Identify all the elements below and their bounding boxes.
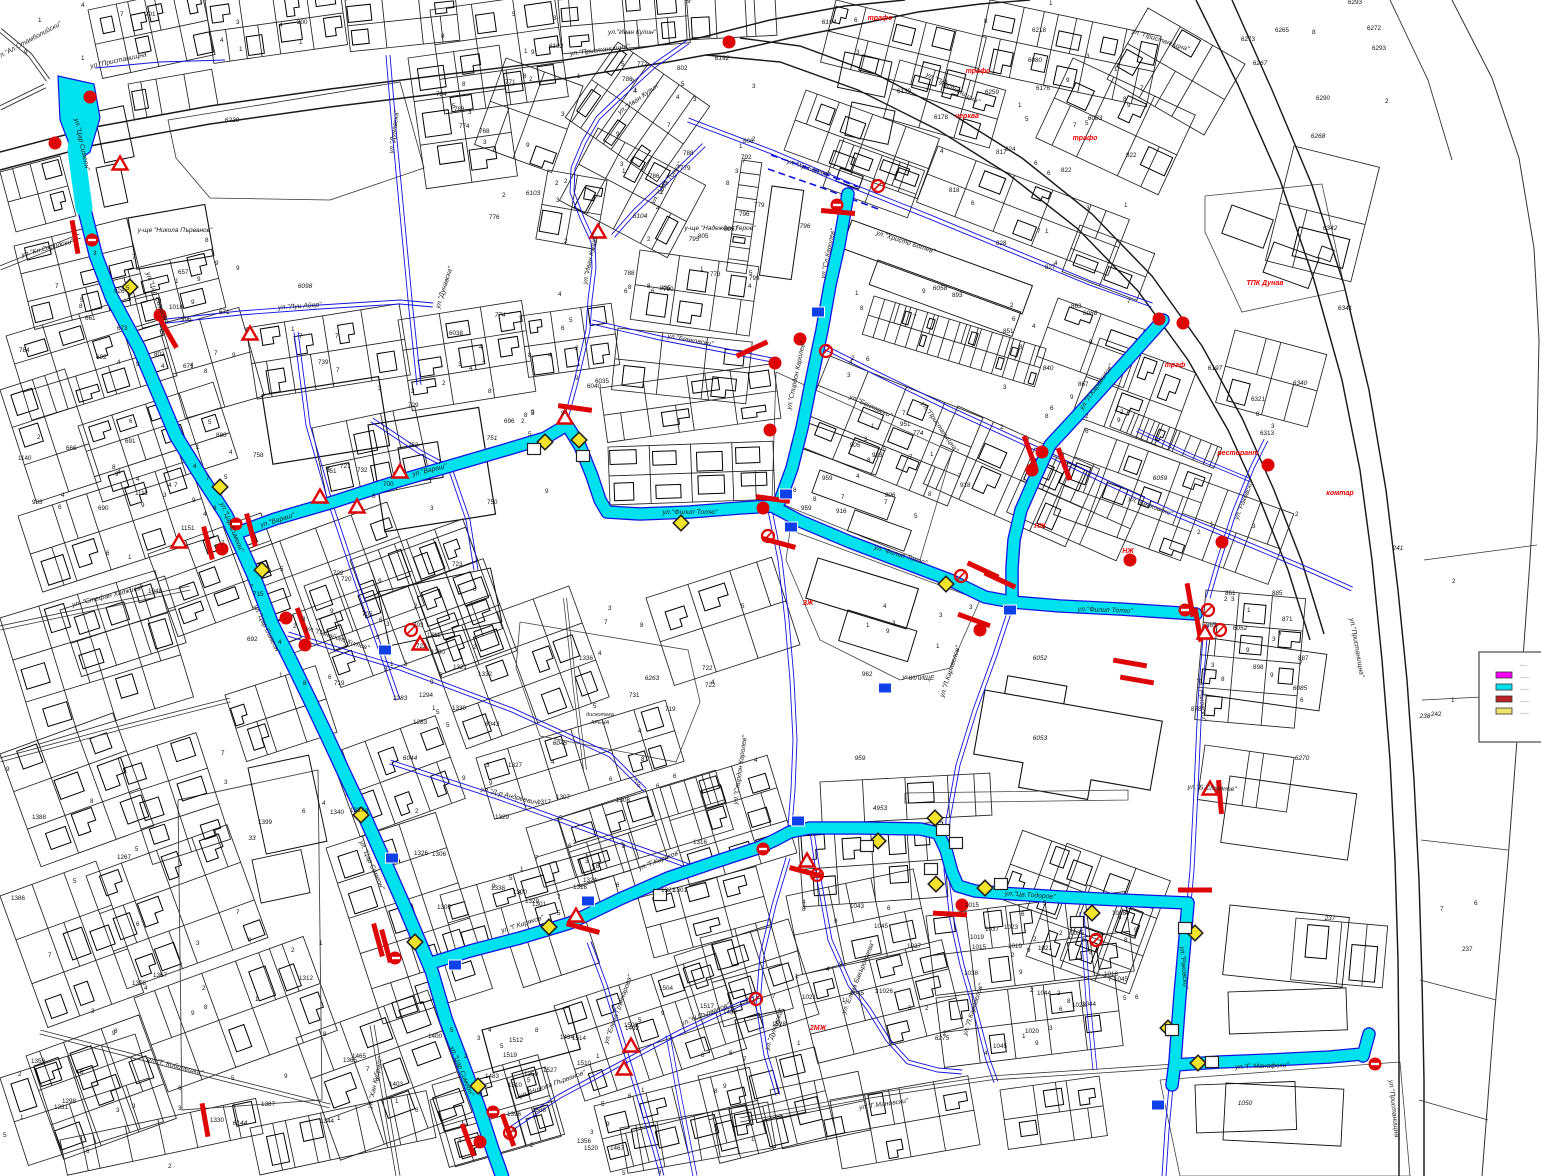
svg-text:2: 2 xyxy=(564,178,568,185)
svg-text:4: 4 xyxy=(598,650,602,657)
svg-text:6194: 6194 xyxy=(822,19,837,26)
svg-text:1: 1 xyxy=(279,672,283,679)
svg-text:1: 1 xyxy=(1018,102,1022,109)
svg-text:8: 8 xyxy=(596,863,600,870)
svg-text:1519: 1519 xyxy=(503,1052,518,1059)
svg-text:2: 2 xyxy=(415,808,419,815)
svg-text:3: 3 xyxy=(1252,523,1256,530)
svg-text:ул."Пристанищна": ул."Пристанищна" xyxy=(89,51,151,71)
svg-text:771: 771 xyxy=(505,79,516,86)
svg-text:5: 5 xyxy=(621,61,625,68)
svg-text:6313: 6313 xyxy=(1260,430,1275,437)
svg-text:3: 3 xyxy=(875,988,879,995)
svg-text:6059: 6059 xyxy=(1153,475,1168,482)
svg-text:774: 774 xyxy=(913,430,924,437)
svg-text:3: 3 xyxy=(132,1103,136,1110)
svg-text:ул."Хр.Ботев": ул."Хр.Ботев" xyxy=(785,158,832,179)
svg-text:720: 720 xyxy=(341,576,352,583)
svg-text:1294: 1294 xyxy=(419,692,434,699)
svg-text:НЖ: НЖ xyxy=(1034,523,1046,530)
svg-text:715: 715 xyxy=(253,591,264,598)
svg-text:7: 7 xyxy=(772,993,776,1000)
svg-text:ул. "Стефан Хаджиев": ул. "Стефан Хаджиев" xyxy=(70,583,144,609)
svg-text:3: 3 xyxy=(847,372,851,379)
svg-text:1332: 1332 xyxy=(478,671,493,678)
svg-text:7: 7 xyxy=(841,494,845,501)
svg-text:7: 7 xyxy=(884,499,888,506)
svg-text:8: 8 xyxy=(1019,344,1023,351)
svg-text:2: 2 xyxy=(168,1163,172,1170)
svg-text:4: 4 xyxy=(168,482,172,489)
svg-text:661: 661 xyxy=(85,315,96,322)
svg-text:9: 9 xyxy=(575,375,579,382)
svg-text:2: 2 xyxy=(1197,529,1201,536)
svg-text:779: 779 xyxy=(754,202,765,209)
svg-text:6: 6 xyxy=(328,674,332,681)
svg-text:6080: 6080 xyxy=(1028,57,1043,64)
svg-text:7: 7 xyxy=(132,254,136,261)
svg-text:1306: 1306 xyxy=(432,851,447,858)
svg-text:1: 1 xyxy=(855,290,859,297)
svg-text:1: 1 xyxy=(458,587,462,594)
svg-text:6230: 6230 xyxy=(225,117,240,124)
svg-text:1: 1 xyxy=(596,1053,600,1060)
svg-text:8: 8 xyxy=(1312,29,1316,36)
svg-text:5: 5 xyxy=(436,709,440,716)
svg-text:комтар: комтар xyxy=(1326,490,1354,497)
svg-text:ул."Дунавска": ул."Дунавска" xyxy=(388,109,401,155)
svg-text:6270: 6270 xyxy=(1295,755,1310,762)
svg-text:1386: 1386 xyxy=(11,895,26,902)
svg-text:1140: 1140 xyxy=(18,455,32,462)
svg-text:1308: 1308 xyxy=(132,980,147,987)
svg-text:3: 3 xyxy=(1231,596,1235,603)
svg-text:5: 5 xyxy=(231,1075,235,1082)
svg-text:6178: 6178 xyxy=(934,114,949,121)
svg-text:1387: 1387 xyxy=(261,1101,276,1108)
svg-text:трафо: трафо xyxy=(1073,135,1099,142)
svg-text:238: 238 xyxy=(1419,713,1431,720)
svg-text:1: 1 xyxy=(871,423,875,430)
svg-text:8: 8 xyxy=(213,505,217,512)
svg-text:1: 1 xyxy=(795,973,799,980)
svg-text:7: 7 xyxy=(535,855,539,862)
svg-text:ул."Пристанищна": ул."Пристанищна" xyxy=(1348,617,1366,679)
svg-text:1388: 1388 xyxy=(32,814,47,821)
svg-text:1336: 1336 xyxy=(579,655,594,662)
svg-text:6083: 6083 xyxy=(1088,115,1103,122)
svg-text:3: 3 xyxy=(164,315,168,322)
svg-text:2: 2 xyxy=(202,985,206,992)
svg-text:731: 731 xyxy=(629,692,640,699)
svg-text:.....: ..... xyxy=(1520,662,1527,668)
svg-text:6272: 6272 xyxy=(1367,25,1382,32)
svg-text:5: 5 xyxy=(3,1132,7,1139)
svg-text:7: 7 xyxy=(174,482,178,489)
svg-text:3: 3 xyxy=(1211,662,1215,669)
svg-text:1: 1 xyxy=(390,661,394,668)
svg-text:788: 788 xyxy=(683,150,694,157)
svg-text:7: 7 xyxy=(557,894,561,901)
svg-text:2: 2 xyxy=(1010,302,1014,309)
svg-text:1330: 1330 xyxy=(452,705,467,712)
svg-text:6: 6 xyxy=(1050,405,1054,412)
svg-text:9: 9 xyxy=(1066,77,1070,84)
svg-text:2: 2 xyxy=(555,180,559,187)
svg-text:1316: 1316 xyxy=(693,839,708,846)
svg-text:7: 7 xyxy=(1108,976,1112,983)
svg-text:6: 6 xyxy=(971,200,975,207)
svg-text:9: 9 xyxy=(687,0,691,5)
svg-text:2: 2 xyxy=(1059,930,1063,937)
svg-text:692: 692 xyxy=(96,354,107,361)
svg-text:959: 959 xyxy=(855,755,866,762)
svg-text:9: 9 xyxy=(197,276,201,283)
svg-text:4: 4 xyxy=(488,1027,492,1034)
svg-text:786: 786 xyxy=(649,173,660,180)
svg-text:3: 3 xyxy=(585,858,589,865)
svg-text:1: 1 xyxy=(930,451,934,458)
svg-text:9: 9 xyxy=(545,488,549,495)
svg-text:1: 1 xyxy=(337,1115,341,1122)
svg-text:802: 802 xyxy=(154,351,165,358)
svg-text:1482: 1482 xyxy=(723,1009,738,1016)
svg-text:9: 9 xyxy=(141,502,145,509)
svg-text:8: 8 xyxy=(860,305,864,312)
svg-text:8: 8 xyxy=(714,1088,718,1095)
svg-text:6058: 6058 xyxy=(933,285,948,292)
svg-text:3: 3 xyxy=(1086,205,1090,212)
svg-text:2: 2 xyxy=(851,355,855,362)
svg-text:1316: 1316 xyxy=(573,884,588,891)
svg-text:732: 732 xyxy=(357,467,368,474)
svg-text:878: 878 xyxy=(1191,706,1202,713)
svg-text:3: 3 xyxy=(553,15,557,22)
svg-text:241: 241 xyxy=(1392,545,1404,552)
svg-text:1: 1 xyxy=(797,1040,801,1047)
svg-text:1340: 1340 xyxy=(330,809,345,816)
svg-text:6: 6 xyxy=(866,356,870,363)
svg-text:6263: 6263 xyxy=(645,675,660,682)
svg-text:6293: 6293 xyxy=(1372,45,1387,52)
svg-text:885: 885 xyxy=(1272,590,1283,597)
svg-text:4: 4 xyxy=(117,359,121,366)
svg-text:1037: 1037 xyxy=(985,926,1000,933)
svg-text:5: 5 xyxy=(527,1077,531,1084)
svg-text:6: 6 xyxy=(656,783,660,790)
svg-text:1330: 1330 xyxy=(210,1117,225,1124)
svg-text:6340: 6340 xyxy=(1293,380,1308,387)
svg-text:4: 4 xyxy=(748,283,752,290)
svg-text:779: 779 xyxy=(680,165,691,172)
svg-text:751: 751 xyxy=(487,435,498,442)
svg-text:1307: 1307 xyxy=(556,794,571,801)
svg-text:6176: 6176 xyxy=(1036,85,1051,92)
svg-text:1356: 1356 xyxy=(577,1138,592,1145)
svg-text:2: 2 xyxy=(473,644,477,651)
svg-text:1018: 1018 xyxy=(1112,910,1127,917)
svg-text:739: 739 xyxy=(318,359,329,366)
svg-text:4: 4 xyxy=(278,639,282,646)
svg-text:722: 722 xyxy=(416,643,427,650)
svg-text:.......: ....... xyxy=(1520,686,1530,692)
svg-text:6040: 6040 xyxy=(587,383,602,390)
svg-text:2: 2 xyxy=(18,1071,22,1078)
svg-text:6044: 6044 xyxy=(403,755,418,762)
svg-text:3: 3 xyxy=(735,168,739,175)
svg-text:2: 2 xyxy=(513,1127,517,1134)
svg-text:4: 4 xyxy=(826,966,830,973)
svg-text:9: 9 xyxy=(1027,947,1031,954)
svg-text:дискотека: дискотека xyxy=(586,712,614,718)
svg-text:6321: 6321 xyxy=(1251,396,1266,403)
svg-text:2: 2 xyxy=(291,947,295,954)
svg-text:1: 1 xyxy=(175,278,179,285)
svg-text:7: 7 xyxy=(604,619,608,626)
svg-text:у-ще "Никола Първанов": у-ще "Никола Първанов" xyxy=(137,227,213,234)
svg-text:6043: 6043 xyxy=(485,721,500,728)
svg-text:3: 3 xyxy=(620,161,624,168)
svg-text:3: 3 xyxy=(477,1035,481,1042)
svg-text:1504: 1504 xyxy=(659,985,674,992)
svg-text:6: 6 xyxy=(379,617,383,624)
svg-text:6197: 6197 xyxy=(1208,365,1223,372)
svg-text:7: 7 xyxy=(214,350,218,357)
svg-text:1298: 1298 xyxy=(62,1098,77,1105)
svg-text:2: 2 xyxy=(1224,596,1228,603)
svg-text:776: 776 xyxy=(489,214,500,221)
svg-text:4: 4 xyxy=(136,476,140,483)
svg-text:9: 9 xyxy=(526,142,530,149)
svg-text:7: 7 xyxy=(1073,122,1077,129)
svg-text:1400: 1400 xyxy=(428,1033,443,1040)
svg-text:750: 750 xyxy=(487,499,498,506)
svg-text:ТПК Дунав: ТПК Дунав xyxy=(1246,280,1284,287)
svg-text:ул."Дунавска": ул."Дунавска" xyxy=(434,265,455,310)
svg-text:1: 1 xyxy=(255,996,259,1003)
svg-text:1016: 1016 xyxy=(169,304,184,311)
svg-text:8: 8 xyxy=(462,81,466,88)
svg-text:916: 916 xyxy=(836,508,847,515)
svg-text:1038: 1038 xyxy=(964,970,979,977)
svg-text:2МЖ: 2МЖ xyxy=(809,1025,827,1032)
svg-text:1331: 1331 xyxy=(54,1104,69,1111)
svg-text:1: 1 xyxy=(842,997,846,1004)
svg-text:4: 4 xyxy=(161,363,165,370)
svg-text:6: 6 xyxy=(887,905,891,912)
svg-text:6218: 6218 xyxy=(1032,27,1047,34)
svg-text:1111: 1111 xyxy=(135,490,148,497)
svg-text:5: 5 xyxy=(1123,995,1127,1002)
svg-text:6: 6 xyxy=(729,1050,733,1057)
svg-text:6273: 6273 xyxy=(1241,36,1256,43)
svg-text:8: 8 xyxy=(928,491,932,498)
svg-text:3: 3 xyxy=(386,621,390,628)
svg-text:4: 4 xyxy=(883,603,887,610)
svg-text:7: 7 xyxy=(667,122,671,129)
svg-text:774: 774 xyxy=(459,123,470,130)
svg-text:3: 3 xyxy=(224,779,228,786)
svg-text:8: 8 xyxy=(441,33,445,40)
svg-text:4: 4 xyxy=(81,2,85,9)
svg-text:1527: 1527 xyxy=(543,1067,558,1074)
svg-text:2: 2 xyxy=(1085,413,1089,420)
svg-text:6: 6 xyxy=(1059,1006,1063,1013)
svg-text:1021: 1021 xyxy=(802,994,817,1001)
svg-text:5: 5 xyxy=(327,467,331,474)
svg-text:768: 768 xyxy=(479,128,490,135)
svg-text:2: 2 xyxy=(943,1030,947,1037)
svg-text:1048: 1048 xyxy=(148,588,163,595)
svg-text:6268: 6268 xyxy=(1311,133,1326,140)
svg-text:962: 962 xyxy=(862,671,873,678)
svg-text:1312: 1312 xyxy=(299,975,314,982)
svg-text:691: 691 xyxy=(125,438,136,445)
svg-text:1044: 1044 xyxy=(1082,1001,1097,1008)
svg-text:1: 1 xyxy=(641,1087,645,1094)
svg-text:2: 2 xyxy=(1033,936,1037,943)
svg-text:8: 8 xyxy=(114,1028,118,1035)
svg-text:8: 8 xyxy=(79,303,83,310)
svg-text:3: 3 xyxy=(856,49,860,56)
svg-text:996: 996 xyxy=(181,316,192,323)
svg-text:4: 4 xyxy=(61,492,65,499)
svg-text:5: 5 xyxy=(559,815,563,822)
svg-text:5: 5 xyxy=(500,1043,504,1050)
svg-text:5: 5 xyxy=(1085,120,1089,127)
svg-text:6: 6 xyxy=(372,493,376,500)
svg-text:1283: 1283 xyxy=(393,695,408,702)
svg-text:3: 3 xyxy=(93,250,97,257)
svg-text:783: 783 xyxy=(454,106,465,113)
svg-text:6293: 6293 xyxy=(1348,0,1363,6)
svg-text:5: 5 xyxy=(1278,630,1282,637)
svg-text:4: 4 xyxy=(754,757,758,764)
svg-text:880: 880 xyxy=(216,432,227,439)
svg-text:4: 4 xyxy=(117,469,121,476)
svg-text:1267: 1267 xyxy=(117,854,132,861)
svg-text:9: 9 xyxy=(191,299,195,306)
svg-text:7: 7 xyxy=(1299,660,1303,667)
svg-text:3: 3 xyxy=(486,762,490,769)
svg-text:ЗЖ: ЗЖ xyxy=(803,600,814,607)
svg-text:200: 200 xyxy=(297,19,308,26)
svg-text:9: 9 xyxy=(834,918,838,925)
svg-text:7: 7 xyxy=(120,11,124,18)
svg-text:1: 1 xyxy=(622,168,626,175)
svg-text:5: 5 xyxy=(749,270,753,277)
svg-text:2: 2 xyxy=(564,238,568,245)
svg-text:3: 3 xyxy=(590,1129,594,1136)
svg-text:8: 8 xyxy=(867,457,871,464)
svg-text:1026: 1026 xyxy=(879,988,894,995)
svg-text:9: 9 xyxy=(191,1010,195,1017)
svg-text:1: 1 xyxy=(81,55,85,62)
svg-text:7: 7 xyxy=(909,454,913,461)
svg-text:6: 6 xyxy=(1047,170,1051,177)
svg-text:3: 3 xyxy=(752,83,756,90)
svg-text:5: 5 xyxy=(208,419,212,426)
svg-text:4: 4 xyxy=(279,22,283,29)
svg-text:865: 865 xyxy=(1206,622,1217,629)
svg-text:9: 9 xyxy=(6,766,10,773)
svg-text:2: 2 xyxy=(530,1142,534,1149)
svg-text:1510: 1510 xyxy=(508,1082,523,1089)
svg-text:1305: 1305 xyxy=(437,904,452,911)
svg-text:5: 5 xyxy=(593,703,597,710)
svg-text:1: 1 xyxy=(577,73,581,80)
svg-text:1: 1 xyxy=(1124,202,1128,209)
svg-text:6342: 6342 xyxy=(1323,225,1338,232)
svg-text:5: 5 xyxy=(73,878,77,885)
svg-text:1: 1 xyxy=(239,46,243,53)
svg-text:1: 1 xyxy=(803,904,807,911)
svg-text:у-ще "Надежден Геров": у-ще "Надежден Геров" xyxy=(684,224,757,232)
svg-text:8: 8 xyxy=(813,496,817,503)
svg-text:8: 8 xyxy=(488,388,492,395)
svg-text:5: 5 xyxy=(126,285,130,292)
svg-text:7: 7 xyxy=(958,473,962,480)
svg-text:6192: 6192 xyxy=(715,55,730,62)
svg-text:1: 1 xyxy=(395,1098,399,1105)
svg-text:3: 3 xyxy=(468,109,472,116)
svg-text:6: 6 xyxy=(473,586,477,593)
svg-text:4: 4 xyxy=(322,800,326,807)
svg-text:7: 7 xyxy=(221,750,225,757)
svg-text:1338: 1338 xyxy=(491,885,506,892)
svg-text:1035: 1035 xyxy=(1070,930,1085,937)
svg-text:ул."Кл.Охридски": ул."Кл.Охридски" xyxy=(19,237,75,259)
svg-text:1: 1 xyxy=(319,940,323,947)
svg-text:6: 6 xyxy=(86,1148,90,1155)
svg-text:758: 758 xyxy=(253,452,264,459)
svg-text:3: 3 xyxy=(556,197,560,204)
svg-text:802: 802 xyxy=(677,65,688,72)
svg-text:4: 4 xyxy=(676,94,680,101)
svg-text:1151: 1151 xyxy=(181,525,195,532)
svg-text:4: 4 xyxy=(469,365,473,372)
svg-text:6038: 6038 xyxy=(449,330,464,337)
svg-text:1: 1 xyxy=(432,705,436,712)
svg-text:1: 1 xyxy=(700,266,704,273)
svg-text:2: 2 xyxy=(1385,98,1389,105)
svg-text:7: 7 xyxy=(743,1056,747,1063)
svg-text:905: 905 xyxy=(850,442,861,449)
svg-text:1399: 1399 xyxy=(258,819,273,826)
svg-text:1324: 1324 xyxy=(583,877,598,884)
svg-text:8: 8 xyxy=(701,1052,705,1059)
svg-text:8: 8 xyxy=(628,284,632,291)
svg-text:ул."Раковски": ул."Раковски" xyxy=(1233,478,1256,522)
svg-text:1: 1 xyxy=(20,1114,24,1121)
svg-text:1: 1 xyxy=(1022,1033,1026,1040)
svg-text:1037: 1037 xyxy=(907,943,922,950)
svg-text:8: 8 xyxy=(1045,413,1049,420)
svg-text:9: 9 xyxy=(661,1010,665,1017)
svg-text:8: 8 xyxy=(1256,411,1260,418)
svg-text:1359: 1359 xyxy=(31,1058,46,1065)
svg-text:719: 719 xyxy=(334,680,345,687)
svg-text:2: 2 xyxy=(660,189,664,196)
svg-text:7: 7 xyxy=(742,158,746,165)
svg-text:9: 9 xyxy=(192,497,196,504)
svg-text:УЧИЛИЩЕ: УЧИЛИЩЕ xyxy=(901,675,935,682)
svg-text:1510: 1510 xyxy=(577,1060,592,1067)
svg-text:8: 8 xyxy=(303,680,307,687)
svg-text:752: 752 xyxy=(408,442,419,449)
svg-text:4: 4 xyxy=(856,473,860,480)
svg-text:6290: 6290 xyxy=(1316,95,1331,102)
